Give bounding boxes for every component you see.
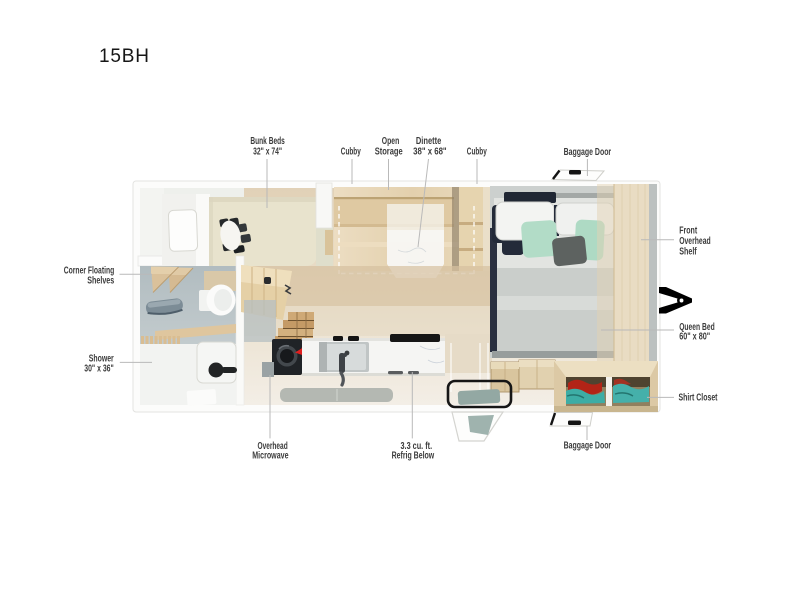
- svg-text:15BH: 15BH: [99, 46, 150, 67]
- svg-text:Storage: Storage: [375, 147, 403, 158]
- svg-text:Overhead: Overhead: [679, 236, 711, 247]
- svg-text:Cubby: Cubby: [467, 147, 487, 158]
- svg-text:30" x 36": 30" x 36": [84, 363, 114, 374]
- svg-text:Refrig Below: Refrig Below: [392, 451, 435, 462]
- svg-text:Open: Open: [382, 136, 400, 147]
- svg-text:32" x 74": 32" x 74": [253, 147, 282, 158]
- svg-text:Bunk Beds: Bunk Beds: [250, 136, 285, 147]
- svg-text:Shelf: Shelf: [679, 247, 697, 258]
- svg-text:Baggage Door: Baggage Door: [564, 147, 612, 158]
- svg-text:Microwave: Microwave: [252, 451, 288, 462]
- svg-text:Baggage Door: Baggage Door: [564, 441, 612, 452]
- svg-text:Cubby: Cubby: [341, 147, 361, 158]
- svg-text:60" x 80": 60" x 80": [679, 332, 710, 343]
- svg-text:Shelves: Shelves: [87, 275, 114, 286]
- svg-text:38" x 68": 38" x 68": [413, 147, 447, 158]
- svg-text:Front: Front: [679, 226, 697, 237]
- svg-text:Shirt Closet: Shirt Closet: [679, 393, 718, 404]
- svg-text:Dinette: Dinette: [416, 136, 442, 147]
